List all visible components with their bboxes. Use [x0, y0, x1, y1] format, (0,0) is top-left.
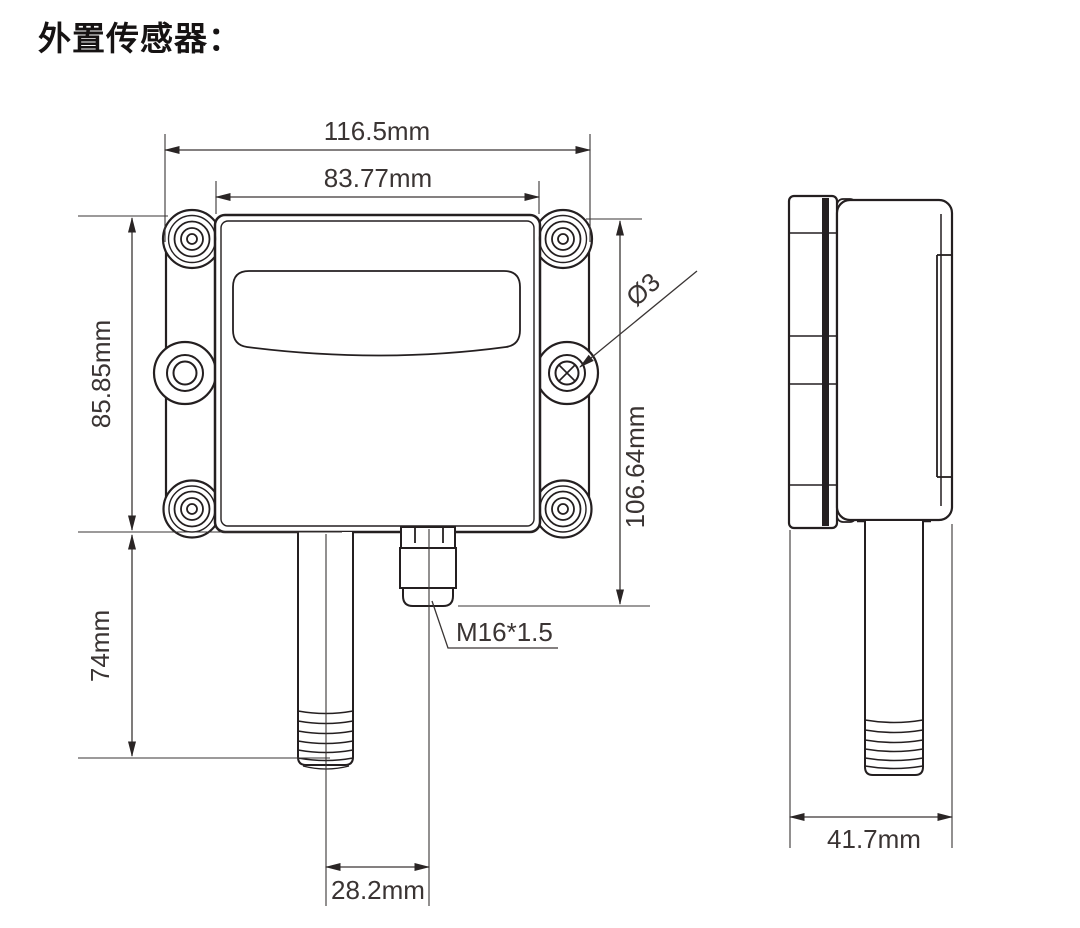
- front-view: [154, 210, 598, 769]
- dim-label-overall-width: 116.5mm: [324, 116, 430, 146]
- dim-gland-thread: M16*1.5: [432, 601, 558, 648]
- side-body: [837, 200, 952, 520]
- dim-label-depth: 41.7mm: [827, 824, 921, 854]
- dim-label-overall-height: 106.64mm: [620, 406, 650, 529]
- dim-label-hole-diameter: Ø3: [620, 267, 666, 313]
- dim-label-gland-thread: M16*1.5: [456, 617, 553, 647]
- side-view: [789, 196, 953, 775]
- dim-label-mount-width: 83.77mm: [324, 163, 432, 193]
- dim-label-probe-offset: 28.2mm: [331, 875, 425, 905]
- ear-top-left: [163, 210, 221, 268]
- ear-top-right: [534, 210, 592, 268]
- enclosure-body: [215, 215, 540, 532]
- ear-bottom-right: [535, 481, 592, 538]
- dim-probe-length: 74mm: [78, 535, 330, 758]
- label-window: [233, 271, 520, 356]
- gasket-seam: [822, 198, 829, 526]
- drawing-page: 外置传感器：: [0, 0, 1080, 928]
- sensor-probe-side: [865, 521, 923, 775]
- ear-mid-left: [154, 342, 216, 404]
- technical-drawing: 116.5mm 83.77mm 85.85mm 74mm: [0, 0, 1080, 928]
- cable-gland: [400, 527, 456, 606]
- ear-bottom-left: [164, 481, 221, 538]
- dim-mount-width: 83.77mm: [216, 163, 539, 214]
- dim-hole-diameter: Ø3: [580, 267, 697, 367]
- dim-label-body-height: 85.85mm: [86, 320, 116, 428]
- dim-label-probe-length: 74mm: [85, 610, 115, 682]
